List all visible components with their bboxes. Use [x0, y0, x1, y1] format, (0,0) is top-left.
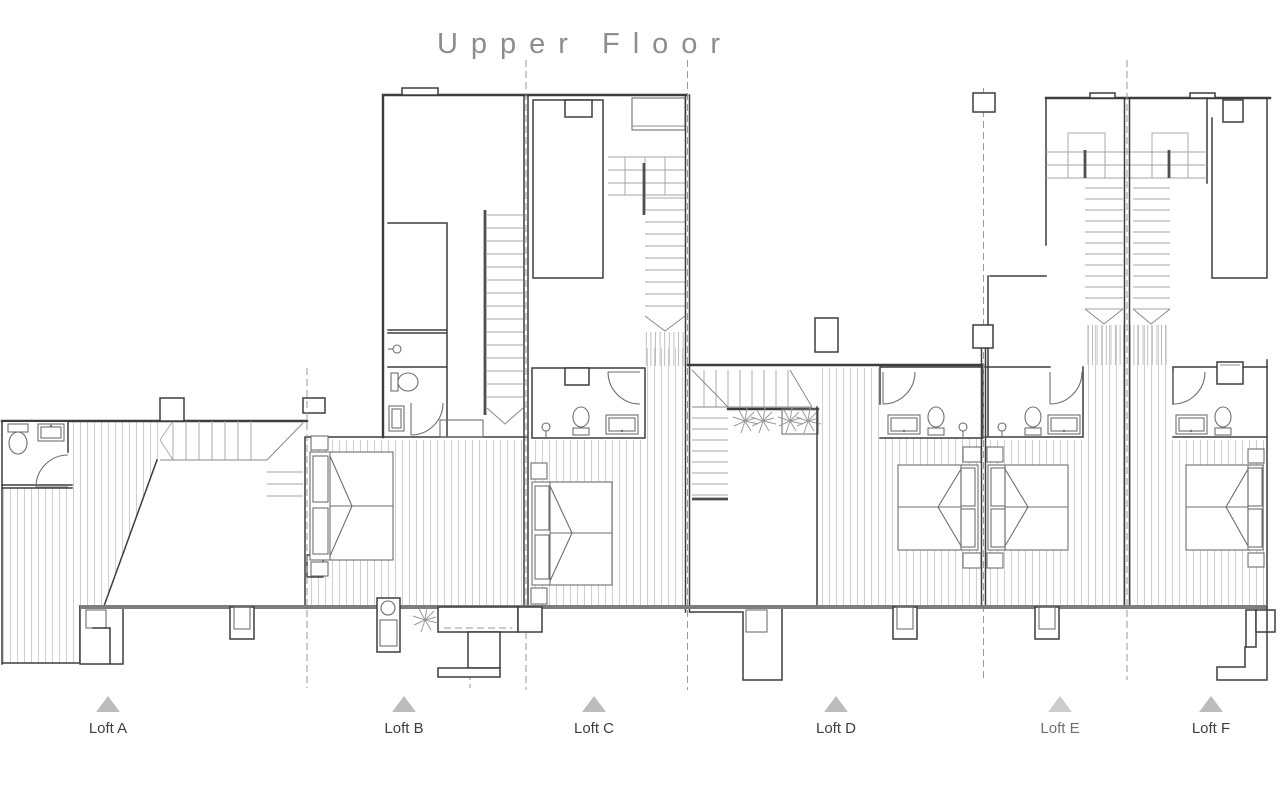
floor-plan-drawing	[0, 0, 1280, 800]
loft-f-bathroom	[1173, 362, 1267, 437]
loft-f-stairs	[1133, 188, 1170, 324]
loft-e-wall-light	[998, 423, 1006, 438]
stair-arrow	[645, 316, 685, 331]
loft-c-wall-light	[542, 423, 550, 438]
loft-b-wall-light	[388, 345, 401, 353]
loft-d-chimney	[815, 318, 838, 352]
loft-a-stairs	[160, 421, 303, 496]
loft-d-planter	[728, 408, 821, 434]
marker-loft-e: Loft E	[1000, 696, 1120, 737]
triangle-icon	[1199, 696, 1223, 712]
loft-c-bathroom	[532, 368, 645, 438]
loft-a-column	[160, 398, 184, 421]
loft-label: Loft F	[1151, 720, 1271, 737]
marker-loft-f: Loft F	[1151, 696, 1271, 737]
marker-loft-b: Loft B	[344, 696, 464, 737]
loft-f-bed	[1186, 449, 1264, 567]
triangle-icon	[824, 696, 848, 712]
loft-a-entry-steps	[80, 606, 123, 664]
loft-b-bathroom	[389, 373, 443, 435]
floor-plan-page: Upper Floor	[0, 0, 1280, 800]
southeast-entry-steps	[1217, 607, 1275, 680]
loft-d-toilet	[928, 407, 944, 435]
loft-f-shower	[1217, 362, 1243, 384]
loft-c-closet	[632, 98, 685, 130]
loft-c-shower	[565, 368, 589, 385]
loft-b-parapet	[402, 88, 438, 95]
loft-e-bathroom	[985, 367, 1083, 438]
loft-c-door-arc	[608, 372, 640, 404]
window-box	[230, 607, 254, 639]
loft-e-bed	[987, 447, 1068, 568]
loft-a-column-2	[303, 398, 325, 413]
loft-b-stairs	[440, 210, 523, 437]
loft-a-toilet	[8, 424, 28, 454]
loft-f-door-arc	[1173, 372, 1205, 404]
loft-f-toilet	[1215, 407, 1231, 435]
loft-e-sink	[1048, 415, 1080, 434]
loft-c-sink	[606, 415, 638, 434]
loft-a-bathroom	[2, 421, 72, 488]
loft-label: Loft C	[534, 720, 654, 737]
loft-label: Loft A	[48, 720, 168, 737]
stair-arrow	[1085, 309, 1123, 324]
marker-loft-c: Loft C	[534, 696, 654, 737]
loft-f-closet	[1223, 100, 1243, 122]
stair-arrow	[1133, 309, 1170, 324]
loft-c-toilet	[573, 407, 589, 435]
party-wall-column	[973, 93, 995, 112]
triangle-icon	[582, 696, 606, 712]
loft-d-sink	[888, 415, 920, 434]
bottom-facade	[80, 598, 1275, 680]
loft-b-toilet	[391, 373, 418, 391]
loft-e-stairs	[1085, 188, 1123, 324]
loft-f-sink	[1176, 415, 1207, 434]
loft-d-entry-steps	[690, 608, 782, 680]
window-box	[893, 607, 917, 639]
loft-a-sink	[38, 424, 64, 441]
loft-c-stairs	[608, 157, 685, 366]
party-wall-column-2	[973, 325, 993, 348]
loft-e-toilet	[1025, 407, 1041, 435]
triangle-icon	[1048, 696, 1072, 712]
triangle-icon	[96, 696, 120, 712]
loft-label: Loft D	[776, 720, 896, 737]
loft-b-bed	[310, 436, 393, 576]
loft-d-bed	[898, 447, 981, 568]
floor-hatch-areas	[2, 325, 1267, 663]
loft-e-door-arc	[1050, 372, 1082, 404]
loft-label: Loft E	[1000, 720, 1120, 737]
marker-loft-d: Loft D	[776, 696, 896, 737]
loft-b-sink	[389, 406, 404, 431]
window-box	[1035, 607, 1059, 639]
loft-c-inner-room	[533, 100, 603, 278]
triangle-icon	[392, 696, 416, 712]
stair-arrow	[487, 408, 523, 424]
loft-c-bed	[531, 463, 612, 604]
marker-loft-a: Loft A	[48, 696, 168, 737]
loft-b-door-arc	[411, 403, 443, 435]
loft-label: Loft B	[344, 720, 464, 737]
